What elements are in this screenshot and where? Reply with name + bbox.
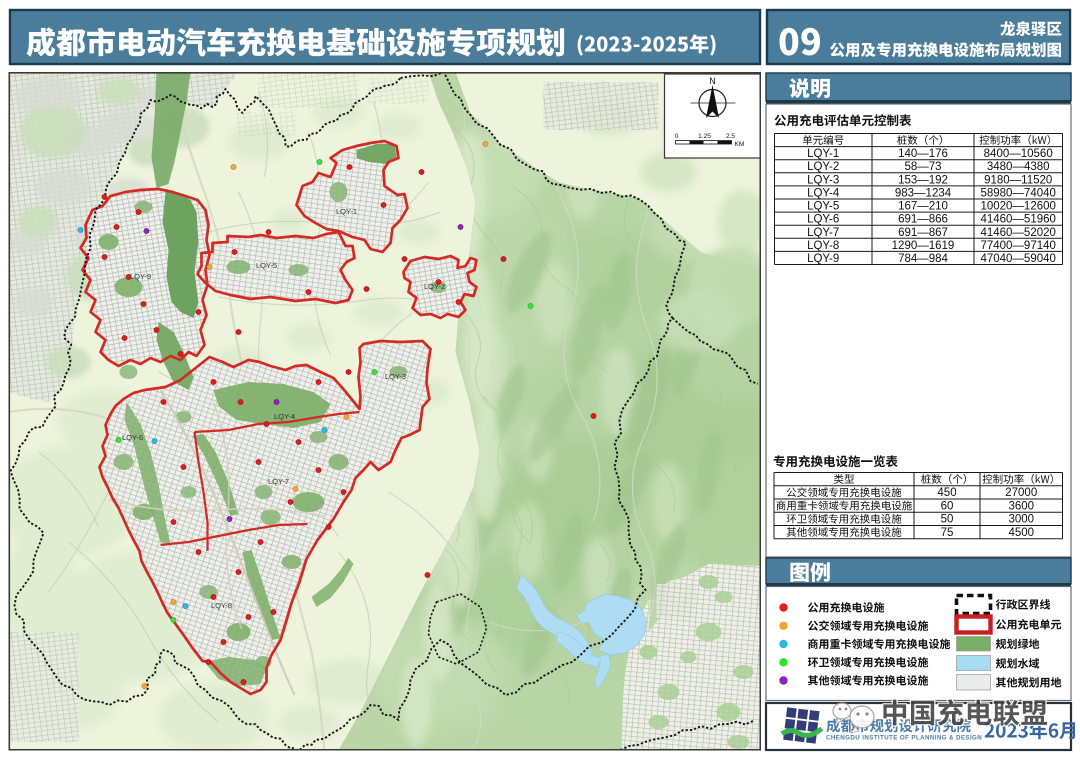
svg-text:41460—52020: 41460—52020 xyxy=(980,227,1055,239)
svg-text:47040—59040: 47040—59040 xyxy=(980,253,1055,265)
svg-text:LQY-7: LQY-7 xyxy=(268,477,289,486)
svg-text:LQY-9: LQY-9 xyxy=(130,272,151,281)
svg-text:77400—97140: 77400—97140 xyxy=(980,240,1055,252)
svg-text:450: 450 xyxy=(937,487,956,499)
svg-text:3480—4380: 3480—4380 xyxy=(987,161,1050,173)
svg-text:784—984: 784—984 xyxy=(898,253,948,265)
svg-text:LQY-1: LQY-1 xyxy=(336,207,357,216)
svg-text:8400—10560: 8400—10560 xyxy=(984,148,1053,160)
svg-text:LQY-5: LQY-5 xyxy=(807,201,839,213)
svg-text:LQY-4: LQY-4 xyxy=(274,412,295,421)
svg-text:3600: 3600 xyxy=(1008,500,1034,512)
svg-text:LQY-3: LQY-3 xyxy=(385,372,406,381)
svg-text:LQY-2: LQY-2 xyxy=(424,282,445,291)
svg-text:4500: 4500 xyxy=(1008,527,1034,539)
svg-text:60: 60 xyxy=(941,500,954,512)
svg-text:75: 75 xyxy=(941,527,954,539)
svg-text:KM: KM xyxy=(735,141,745,148)
svg-text:CHENGDU INSTITUTE OF PLANNING: CHENGDU INSTITUTE OF PLANNING & DESIGN xyxy=(826,735,982,742)
svg-text:27000: 27000 xyxy=(1005,487,1037,499)
svg-text:LQY-6: LQY-6 xyxy=(122,433,143,442)
svg-text:LQY-5: LQY-5 xyxy=(256,261,277,270)
svg-text:LQY-2: LQY-2 xyxy=(807,161,839,173)
svg-text:LQY-8: LQY-8 xyxy=(211,601,232,610)
svg-text:50: 50 xyxy=(941,514,954,526)
svg-text:691—867: 691—867 xyxy=(898,227,948,239)
svg-text:LQY-9: LQY-9 xyxy=(807,253,839,265)
svg-text:LQY-7: LQY-7 xyxy=(807,227,839,239)
svg-text:1290—1619: 1290—1619 xyxy=(892,240,955,252)
svg-text:LQY-1: LQY-1 xyxy=(807,148,839,160)
svg-text:LQY-6: LQY-6 xyxy=(807,214,839,226)
svg-text:58980—74040: 58980—74040 xyxy=(980,187,1055,199)
svg-text:1.25: 1.25 xyxy=(698,133,711,140)
svg-text:167—210: 167—210 xyxy=(898,201,948,213)
svg-text:153—192: 153—192 xyxy=(898,174,948,186)
svg-text:983—1234: 983—1234 xyxy=(895,187,952,199)
svg-text:58—73: 58—73 xyxy=(904,161,941,173)
svg-text:0: 0 xyxy=(675,133,679,140)
svg-text:41460—51960: 41460—51960 xyxy=(980,214,1055,226)
svg-text:140—176: 140—176 xyxy=(898,148,948,160)
svg-text:10020—12600: 10020—12600 xyxy=(980,201,1055,213)
svg-text:LQY-8: LQY-8 xyxy=(807,240,839,252)
svg-text:691—866: 691—866 xyxy=(898,214,948,226)
svg-text:3000: 3000 xyxy=(1008,514,1034,526)
svg-text:LQY-3: LQY-3 xyxy=(807,174,839,186)
svg-text:N: N xyxy=(709,76,716,86)
svg-text:LQY-4: LQY-4 xyxy=(807,187,840,199)
svg-text:9180—11520: 9180—11520 xyxy=(984,174,1052,186)
svg-text:2.5: 2.5 xyxy=(726,133,735,140)
